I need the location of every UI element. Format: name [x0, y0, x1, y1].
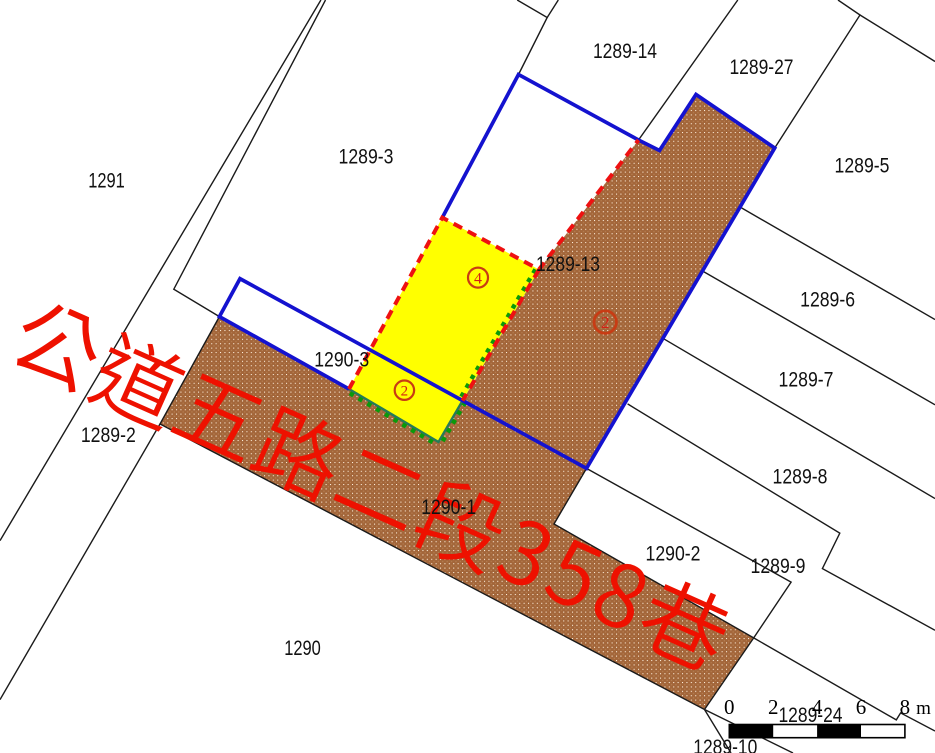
- svg-text:1290-1: 1290-1: [421, 496, 476, 519]
- svg-text:1291: 1291: [88, 170, 125, 193]
- svg-text:m: m: [916, 698, 931, 719]
- svg-text:1289-6: 1289-6: [800, 289, 855, 312]
- svg-text:6: 6: [856, 695, 867, 719]
- svg-text:1289-13: 1289-13: [536, 253, 600, 276]
- svg-text:1289-27: 1289-27: [729, 56, 793, 79]
- svg-text:4: 4: [812, 695, 823, 719]
- svg-text:1289-7: 1289-7: [779, 369, 834, 392]
- svg-text:2: 2: [601, 313, 610, 332]
- svg-text:1289-14: 1289-14: [593, 40, 657, 63]
- svg-text:1289-24: 1289-24: [778, 704, 842, 727]
- svg-text:2: 2: [768, 695, 779, 719]
- svg-text:1289-3: 1289-3: [339, 146, 394, 169]
- svg-text:1289-5: 1289-5: [835, 155, 890, 178]
- svg-text:1290-2: 1290-2: [646, 543, 701, 566]
- svg-text:1290-3: 1290-3: [314, 349, 369, 372]
- svg-text:1290: 1290: [284, 637, 321, 660]
- svg-text:1289-2: 1289-2: [81, 424, 136, 447]
- svg-text:1289-8: 1289-8: [773, 466, 828, 489]
- svg-text:8: 8: [900, 695, 911, 719]
- svg-text:0: 0: [724, 695, 735, 719]
- svg-text:4: 4: [474, 270, 482, 287]
- svg-text:1289-9: 1289-9: [751, 555, 806, 578]
- svg-text:2: 2: [401, 384, 409, 400]
